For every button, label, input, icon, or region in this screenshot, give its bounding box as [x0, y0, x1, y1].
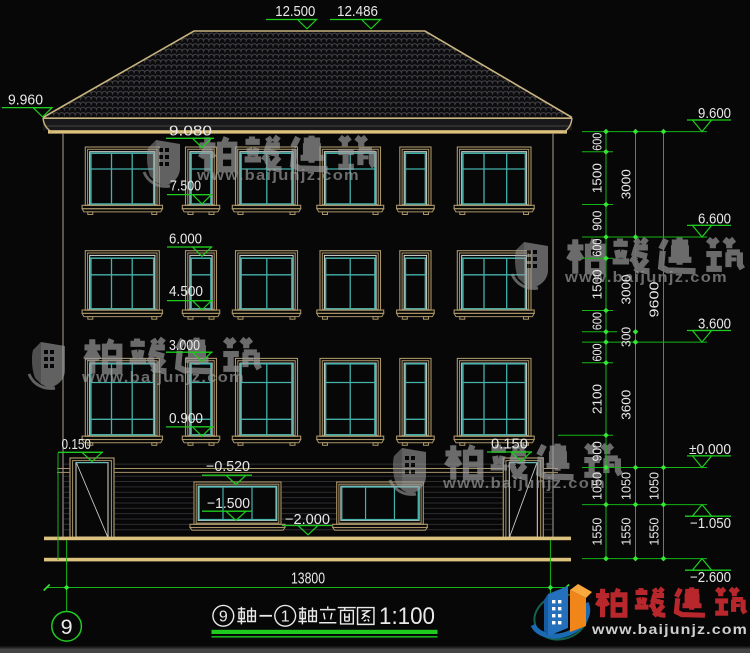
svg-text:www.baijunjz.com: www.baijunjz.com [81, 369, 245, 386]
svg-text:1550: 1550 [648, 518, 662, 546]
svg-text:0.150: 0.150 [491, 437, 528, 453]
svg-text:0.150: 0.150 [62, 437, 92, 453]
svg-text:9.960: 9.960 [8, 93, 43, 109]
svg-text:9: 9 [219, 609, 228, 626]
svg-text:1:100: 1:100 [379, 603, 435, 630]
svg-text:−1.050: −1.050 [690, 516, 731, 532]
svg-text:600: 600 [591, 343, 605, 361]
svg-text:1050: 1050 [648, 472, 662, 500]
svg-text:3600: 3600 [620, 390, 634, 420]
svg-text:9.080: 9.080 [169, 124, 212, 140]
svg-text:www.baijunjz.com: www.baijunjz.com [564, 269, 728, 286]
svg-text:3.000: 3.000 [169, 338, 200, 354]
svg-text:12.486: 12.486 [337, 3, 378, 20]
svg-text:1550: 1550 [591, 518, 605, 546]
svg-text:9600: 9600 [648, 281, 662, 317]
svg-text:3000: 3000 [620, 275, 634, 305]
svg-text:1050: 1050 [591, 472, 605, 500]
svg-text:1: 1 [281, 609, 290, 626]
svg-text:600: 600 [591, 312, 605, 330]
svg-text:1550: 1550 [620, 518, 634, 546]
svg-text:300: 300 [620, 327, 634, 347]
svg-text:1500: 1500 [591, 163, 605, 193]
svg-text:4.500: 4.500 [169, 284, 203, 300]
svg-text:3000: 3000 [620, 169, 634, 199]
svg-text:600: 600 [591, 239, 605, 257]
svg-text:13800: 13800 [291, 571, 325, 588]
svg-text:6.000: 6.000 [169, 232, 202, 248]
svg-text:−1.500: −1.500 [207, 496, 250, 512]
svg-text:7.500: 7.500 [170, 179, 201, 195]
svg-text:www.baijunjz.com: www.baijunjz.com [442, 475, 606, 492]
svg-text:−0.520: −0.520 [206, 459, 250, 475]
svg-text:600: 600 [591, 133, 605, 151]
svg-text:900: 900 [591, 441, 605, 461]
svg-text:9: 9 [61, 615, 73, 639]
svg-text:www.baijunjz.com: www.baijunjz.com [591, 621, 748, 637]
svg-text:900: 900 [591, 211, 605, 231]
svg-text:12.500: 12.500 [275, 3, 315, 20]
svg-text:−2.600: −2.600 [690, 570, 731, 586]
svg-text:www.baijunjz.com: www.baijunjz.com [196, 167, 360, 184]
svg-text:1500: 1500 [591, 269, 605, 299]
svg-text:0.900: 0.900 [169, 411, 203, 427]
svg-text:1050: 1050 [620, 472, 634, 500]
svg-text:2100: 2100 [591, 384, 605, 414]
